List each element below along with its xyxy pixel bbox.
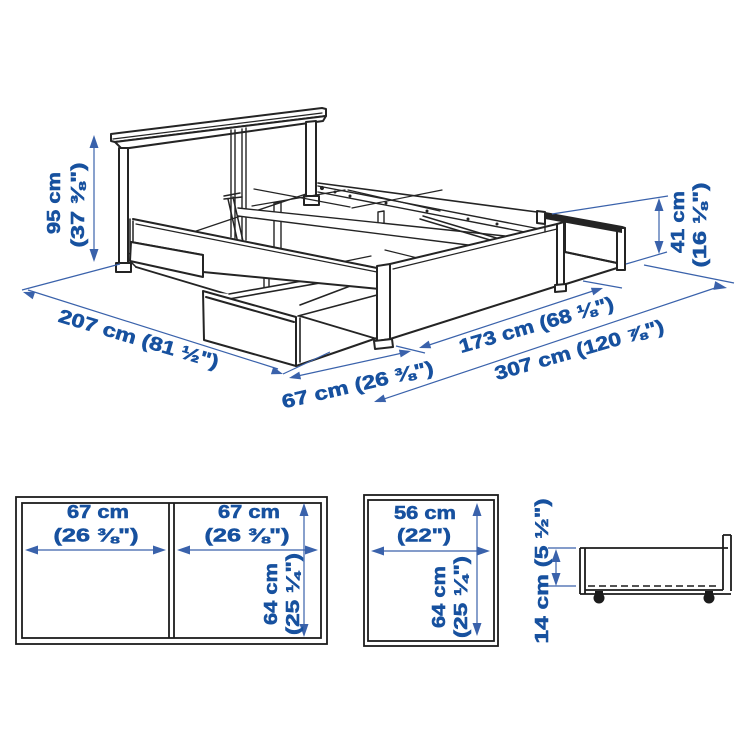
svg-text:(25 ¼"): (25 ¼") bbox=[451, 556, 471, 638]
svg-text:67 cm (26 ⅜"): 67 cm (26 ⅜") bbox=[280, 358, 436, 413]
svg-text:(37 ⅜"): (37 ⅜") bbox=[68, 163, 88, 248]
svg-text:(22"): (22") bbox=[397, 526, 451, 546]
svg-text:(25 ¼"): (25 ¼") bbox=[283, 553, 303, 635]
svg-text:41 cm: 41 cm bbox=[668, 191, 688, 253]
svg-text:(26 ⅜"): (26 ⅜") bbox=[54, 526, 139, 546]
svg-text:(16 ⅛"): (16 ⅛") bbox=[690, 183, 710, 268]
svg-text:67 cm: 67 cm bbox=[218, 502, 280, 522]
svg-text:95 cm: 95 cm bbox=[44, 172, 64, 234]
svg-text:207 cm (81 ½"): 207 cm (81 ½") bbox=[56, 306, 221, 373]
svg-text:64 cm: 64 cm bbox=[261, 563, 281, 625]
svg-text:14 cm (5 ½"): 14 cm (5 ½") bbox=[532, 499, 552, 644]
svg-text:56 cm: 56 cm bbox=[394, 503, 456, 523]
svg-text:64 cm: 64 cm bbox=[429, 566, 449, 628]
svg-text:(26 ⅜"): (26 ⅜") bbox=[205, 526, 290, 546]
svg-text:67 cm: 67 cm bbox=[67, 502, 129, 522]
